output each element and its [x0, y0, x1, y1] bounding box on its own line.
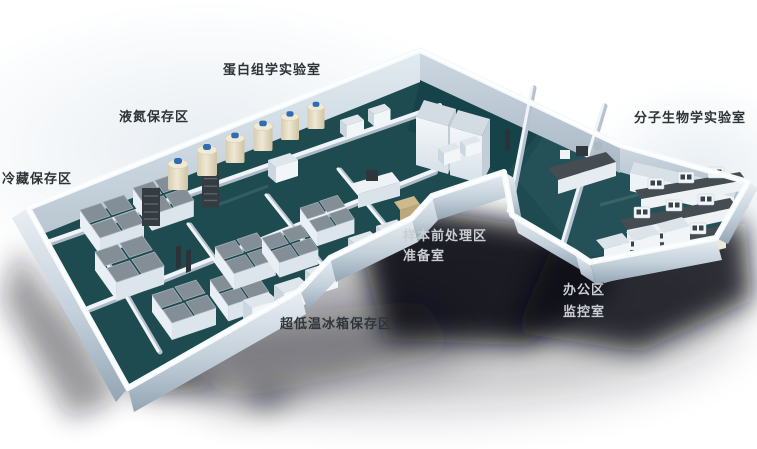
label-monitoring-room: 监控室 [563, 306, 605, 320]
label-cold-storage: 冷藏保存区 [2, 173, 72, 187]
label-preparation-room: 准备室 [403, 250, 445, 264]
building-3d-illustration [0, 0, 757, 449]
label-ult-freezer-storage: 超低温冰箱保存区 [280, 318, 392, 332]
label-molecular-biology-lab: 分子生物学实验室 [634, 112, 746, 126]
cryo-tank [254, 121, 273, 151]
cryo-tank [168, 158, 188, 190]
label-proteomics-lab: 蛋白组学实验室 [223, 64, 321, 78]
label-sample-pretreatment: 样本前处理区 [403, 230, 487, 244]
cryo-tank [197, 144, 217, 176]
label-liquid-nitrogen-storage: 液氮保存区 [119, 111, 189, 125]
lab-floorplan-figure: 蛋白组学实验室 液氮保存区 冷藏保存区 分子生物学实验室 样本前处理区 准备室 … [0, 0, 757, 449]
cryo-tank [308, 102, 325, 129]
label-office-area: 办公区 [563, 284, 605, 298]
cryo-tank [226, 133, 245, 163]
cryo-tank [281, 111, 299, 140]
